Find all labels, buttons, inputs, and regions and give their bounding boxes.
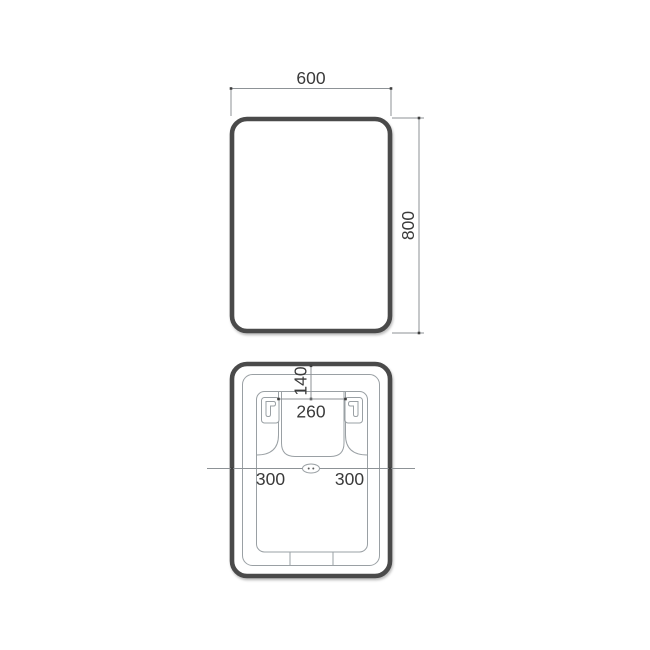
sensor-dot xyxy=(312,468,314,470)
dim-tick xyxy=(418,117,421,120)
dim-tick xyxy=(389,467,392,470)
mirror-front-outline xyxy=(232,119,390,331)
dim-tick xyxy=(418,332,421,335)
dim-tick xyxy=(230,87,233,90)
left-keyhole-bracket xyxy=(262,398,280,424)
front-width-label: 600 xyxy=(296,68,325,88)
sensor-dot xyxy=(308,468,310,470)
dim-tick xyxy=(277,398,280,401)
back-view: 140 260 300 300 xyxy=(207,364,415,576)
sensor-oval xyxy=(303,464,320,473)
right-keyhole-bracket xyxy=(345,398,363,424)
back-bracket-spacing-label: 260 xyxy=(296,402,325,422)
dim-tick xyxy=(344,398,347,401)
dim-tick xyxy=(231,467,234,470)
drawing-canvas: 600 800 xyxy=(0,0,650,650)
dim-tick xyxy=(390,87,393,90)
back-left-edge-label: 300 xyxy=(256,469,285,489)
back-right-edge-label: 300 xyxy=(335,469,364,489)
front-height-label: 800 xyxy=(398,211,418,240)
front-view: 600 800 xyxy=(230,68,424,334)
back-top-offset-label: 140 xyxy=(291,366,311,395)
dimension-drawing-svg: 600 800 xyxy=(0,0,650,650)
